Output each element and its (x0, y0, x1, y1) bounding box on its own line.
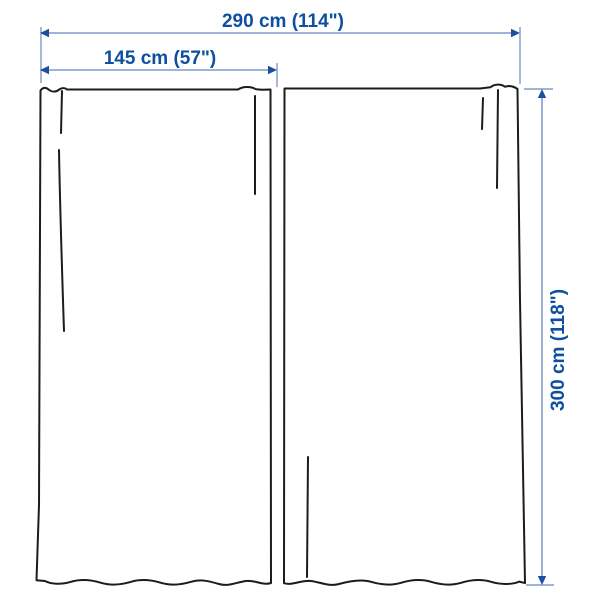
curtain-panel-right (284, 85, 525, 585)
arrow-right-icon (268, 66, 277, 74)
curtain-panel-left-outline (37, 87, 272, 585)
total-width-label: 290 cm (114") (222, 11, 344, 32)
curtain-fold-line (497, 90, 498, 188)
height-label: 300 cm (118") (548, 289, 569, 411)
curtain-panel-left (37, 87, 272, 585)
curtain-fold-line (307, 457, 308, 577)
curtain-fold-line (482, 98, 483, 129)
diagram-canvas: 290 cm (114") 145 cm (57") 300 cm (118") (0, 0, 600, 600)
dimension-height: 300 cm (118") (524, 89, 569, 585)
curtain-panel-right-outline (284, 85, 525, 585)
arrow-up-icon (538, 89, 546, 98)
arrow-down-icon (538, 576, 546, 585)
curtain-fold-line (61, 91, 62, 133)
curtain-dimension-diagram: 290 cm (114") 145 cm (57") 300 cm (118") (0, 0, 600, 600)
arrow-right-icon (511, 29, 520, 37)
dimension-panel-width: 145 cm (57") (40, 48, 277, 87)
panel-width-label: 145 cm (57") (104, 48, 217, 69)
